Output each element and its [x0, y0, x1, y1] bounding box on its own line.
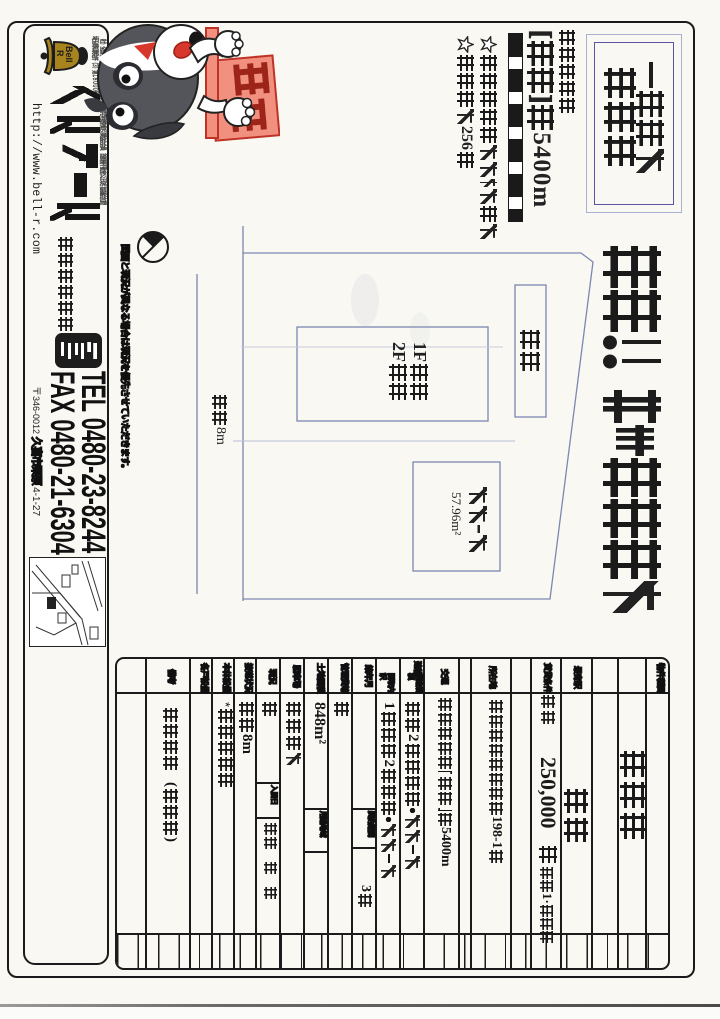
svg-text:R: R: [55, 50, 65, 57]
svg-text:Bell: Bell: [64, 46, 74, 63]
